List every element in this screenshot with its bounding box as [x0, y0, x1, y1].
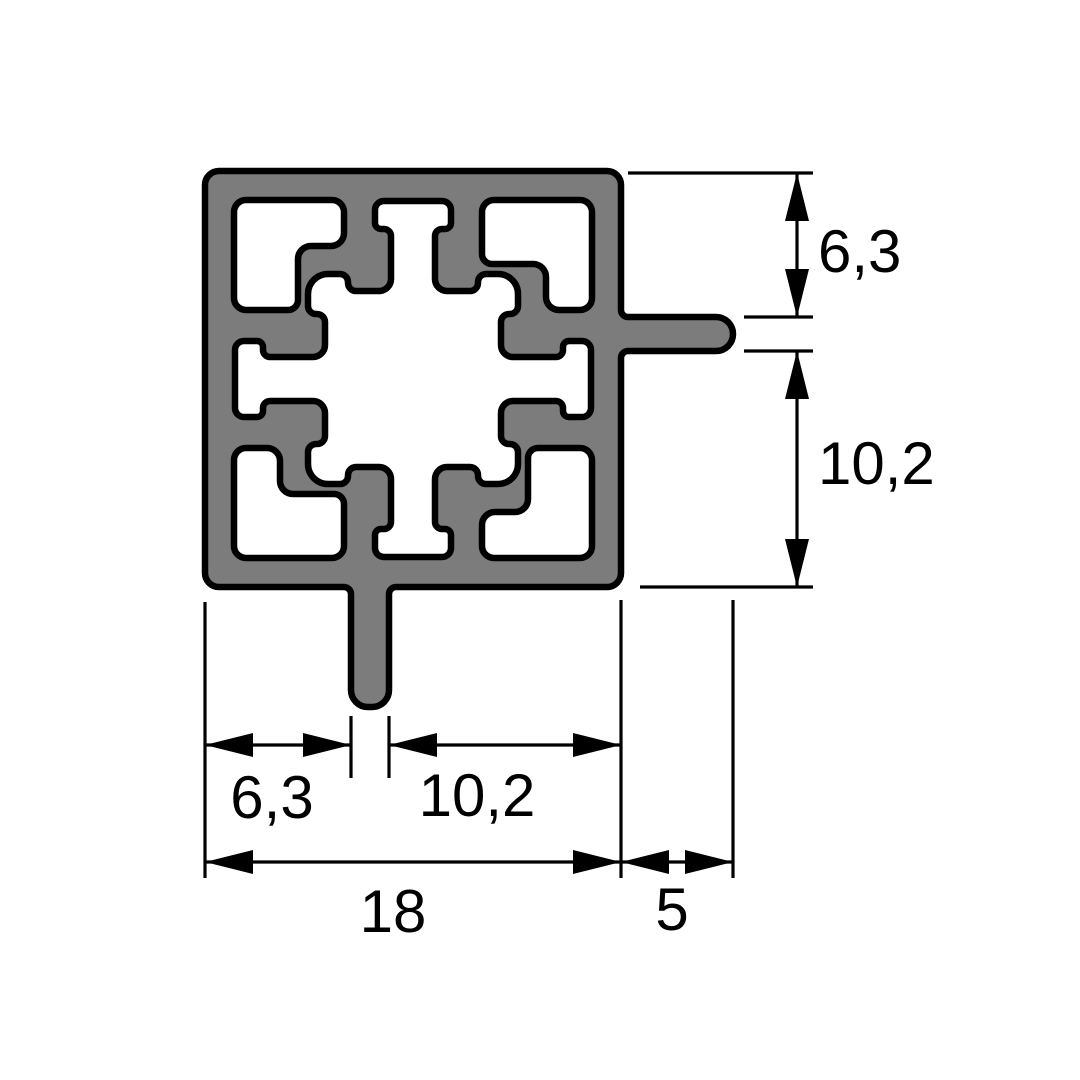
arrowhead-left [205, 733, 253, 757]
arrowhead-left [205, 850, 253, 874]
dimension-label-6-3-bottom: 6,3 [230, 764, 313, 831]
arrowhead-right [573, 733, 621, 757]
arrowhead-left [621, 850, 669, 874]
arrowhead-down [785, 269, 809, 317]
dimension-group-bottom: 6,3 10,2 18 5 [205, 600, 733, 945]
arrowhead-right [573, 850, 621, 874]
arrowhead-up [785, 351, 809, 399]
arrowhead-down [785, 539, 809, 587]
dimension-label-5: 5 [655, 876, 688, 943]
dimension-label-10-2-right: 10,2 [818, 430, 935, 497]
arrowhead-right [303, 733, 351, 757]
profile-technical-drawing: 6,3 10,2 6,3 10,2 18 5 [0, 0, 1080, 1080]
technical-drawing-page: 6,3 10,2 6,3 10,2 18 5 [0, 0, 1080, 1080]
dimension-label-10-2-bottom: 10,2 [419, 762, 536, 829]
dimension-group-right: 6,3 10,2 [628, 173, 935, 587]
dimension-label-18: 18 [360, 878, 427, 945]
arrowhead-right [685, 850, 733, 874]
arrowhead-up [785, 173, 809, 221]
dimension-label-6-3-right: 6,3 [818, 218, 901, 285]
profile-cross-section [205, 171, 733, 707]
arrowhead-left [389, 733, 437, 757]
